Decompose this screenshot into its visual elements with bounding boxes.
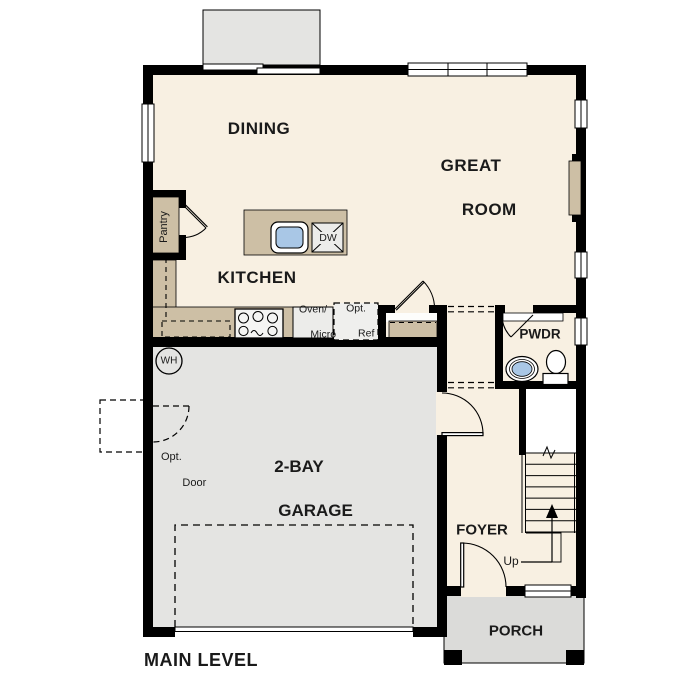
label-dishwasher: DW: [318, 232, 338, 244]
island-sink-basin: [276, 227, 303, 248]
floor-plan-drawing: [0, 0, 687, 687]
floor-plan: DINING GREAT ROOM KITCHEN PWDR FOYER POR…: [0, 0, 687, 687]
powder-niche: [503, 313, 563, 321]
opt-door-stoop: [100, 400, 145, 452]
room-label-kitchen: KITCHEN: [217, 268, 296, 288]
room-label-pantry: Pantry: [158, 211, 170, 243]
room-label-powder: PWDR: [519, 327, 560, 342]
wall-powder-top: [533, 305, 586, 313]
stair-void: [526, 389, 577, 453]
toilet-bowl: [547, 351, 566, 374]
label-oven-micro: Oven/ Micro: [290, 303, 336, 341]
room-label-garage: 2-BAY GARAGE: [245, 456, 353, 522]
wall-niche: [569, 161, 581, 215]
slider-panel-2: [257, 68, 320, 74]
powder-sink-basin: [512, 362, 532, 377]
front-door-leaf: [461, 543, 464, 587]
wall-stair-left: [519, 387, 526, 455]
slider-panel-1: [203, 64, 263, 70]
toilet-tank: [543, 374, 568, 385]
label-opt-door: Opt. Door: [161, 451, 206, 490]
porch-post-right: [566, 650, 584, 665]
room-label-dining: DINING: [228, 119, 291, 139]
porch-post-left: [444, 650, 462, 665]
label-up: Up: [503, 554, 518, 568]
garage-door-panel: [175, 627, 413, 632]
room-label-porch: PORCH: [489, 623, 543, 640]
plan-title: MAIN LEVEL: [144, 650, 258, 671]
patio-slab: [203, 10, 320, 65]
wall-garage-bottom-left: [143, 627, 175, 637]
wall-hall-left: [437, 305, 447, 637]
label-water-heater: WH: [161, 356, 178, 367]
drop-zone-bench: [389, 321, 437, 338]
wall-dropzone-left: [378, 305, 386, 345]
label-opt-ref: Opt. Ref: [338, 302, 375, 340]
room-label-great-room: GREAT ROOM: [425, 155, 516, 221]
room-label-foyer: FOYER: [456, 522, 508, 539]
wall-powder-bottom: [495, 381, 586, 389]
garage-entry-door-leaf: [442, 433, 483, 436]
